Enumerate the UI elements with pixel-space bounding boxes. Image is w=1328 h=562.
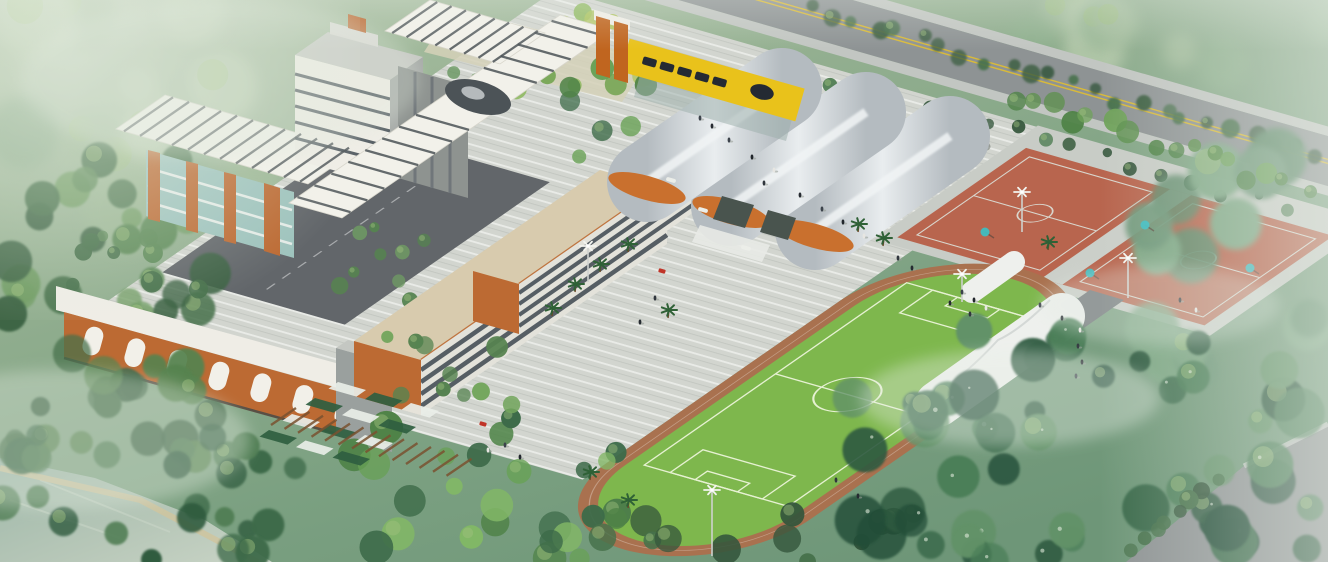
person (961, 289, 964, 294)
riverbank-trees-tree (49, 507, 78, 536)
trees-south-tree (589, 523, 617, 551)
road-trees-north-tree (1090, 83, 1101, 94)
mist-over-trees-2 (1040, 265, 1280, 345)
garden-sw-tree (394, 485, 426, 517)
garden-mid-tree (415, 336, 433, 354)
person (699, 115, 702, 120)
lamp-head (960, 272, 963, 275)
road-trees-south-tree-highlight (1014, 121, 1020, 127)
garden-sw-tree (481, 489, 514, 522)
trees-south-tree-highlight (658, 528, 670, 540)
person (711, 123, 714, 128)
woods-se-tree (895, 504, 928, 537)
riverbank-trees-tree (104, 521, 128, 545)
person (857, 493, 860, 498)
person (969, 311, 972, 316)
garden-sw-tree-highlight (510, 461, 521, 472)
woods-se-leaf-sparkle (965, 533, 969, 537)
woods-se-leaf-sparkle (924, 537, 928, 541)
garden-sw-tree-highlight (462, 528, 473, 539)
woods-se-leaf-sparkle (1040, 549, 1044, 553)
road-trees-north-tree (1022, 65, 1041, 84)
person (949, 300, 952, 305)
woods-west-south-tree (53, 334, 91, 372)
person (519, 454, 522, 459)
garden-sw-tree-highlight (386, 521, 401, 536)
person (821, 206, 824, 211)
person (773, 167, 776, 172)
person (842, 219, 845, 224)
person (654, 295, 657, 300)
trees-south-tree (773, 525, 801, 553)
shrubs-court-west-tree-highlight (419, 235, 425, 241)
gym-west-trees-tree (592, 120, 613, 141)
garden-mid-tree (503, 396, 520, 413)
person (504, 442, 507, 447)
woods-se-leaf-sparkle (870, 435, 873, 438)
hedge-courts-tree (1044, 92, 1065, 113)
woods-se-tree (842, 427, 887, 472)
garden-mid-tree (457, 388, 471, 402)
woods-se-tree (956, 313, 992, 349)
gym-west-trees-tree (621, 116, 641, 136)
top-fade (0, 0, 1328, 50)
garden-mid-tree (486, 336, 508, 358)
road-trees-south-tree-highlight (1041, 134, 1047, 140)
shrubs-court-west-tree (392, 274, 405, 287)
person (897, 255, 900, 260)
hedge-courts-tree-highlight (1027, 94, 1034, 101)
person (751, 154, 754, 159)
person (639, 319, 642, 324)
shrubs-court-west-tree (369, 222, 379, 232)
road-trees-north-tree (1069, 75, 1079, 85)
garden-mid-tree (472, 382, 490, 400)
lamp-head (710, 488, 713, 491)
garden-mid-tree (442, 366, 458, 382)
gym-west-trees-tree (560, 77, 581, 98)
hedge-courts-tree (1025, 93, 1041, 109)
person (863, 233, 866, 238)
road-trees-south-tree (1063, 138, 1076, 151)
woods-se-tree (988, 453, 1020, 485)
riverbank-trees-tree (177, 503, 207, 533)
hedge-courts-tree-highlight (1009, 94, 1018, 103)
garden-sw-tree (467, 443, 491, 467)
shrubs-court-west-tree-highlight (404, 294, 411, 301)
lamp-head (1020, 190, 1023, 193)
woods-se-leaf-sparkle (865, 509, 869, 513)
garden-sw-tree (460, 525, 484, 549)
woods-se-tree (835, 495, 886, 546)
garden-mid-tree-highlight (410, 335, 417, 342)
shrubs-court-west-tree (417, 234, 430, 247)
road-trees-south-tree-highlight (825, 79, 832, 86)
garden-sw-tree-highlight (608, 444, 617, 453)
trees-south-tree-highlight (646, 533, 654, 541)
riverbank-trees-tree (215, 507, 235, 527)
road-trees-south-tree (1039, 133, 1053, 147)
lamp-head (586, 244, 589, 247)
person (973, 297, 976, 302)
trees-south-tree-highlight (783, 505, 794, 516)
mist-over-trees-1 (860, 350, 1160, 446)
shrubs-court-west-tree (395, 245, 410, 260)
trees-south-tree (654, 525, 681, 552)
campus-rendering-svg (0, 0, 1328, 562)
hedge-courts-tree (1077, 107, 1092, 122)
road-trees-north-tree (978, 58, 990, 70)
garden-sw-tree (539, 530, 562, 553)
person (763, 180, 766, 185)
gym-west-trees-tree (572, 150, 586, 164)
riverbank-trees-tree (284, 457, 306, 479)
garden-sw-tree (507, 459, 532, 484)
hedge-courts-tree-highlight (1079, 109, 1086, 116)
garden-mid-tree (381, 331, 393, 343)
gym-west-trees-tree-highlight (594, 122, 603, 131)
person (487, 447, 490, 452)
person (799, 192, 802, 197)
garden-sw-tree (446, 478, 463, 495)
garden-mid-tree-highlight (438, 383, 445, 390)
garden-mid-tree (436, 382, 451, 397)
woods-se-tree (937, 455, 980, 498)
road-trees-south-tree (1012, 120, 1025, 133)
garden-sw-tree (598, 452, 616, 470)
person (911, 265, 914, 270)
woods-se-leaf-sparkle (951, 474, 955, 478)
woods-se-leaf-sparkle (1058, 527, 1062, 531)
road-trees-north-tree (1041, 66, 1054, 79)
person (835, 477, 838, 482)
trees-south-tree (780, 502, 804, 526)
basketball-hoop (981, 228, 990, 237)
woods-se-tree (917, 531, 945, 559)
riverbank-trees-tree-highlight (221, 537, 235, 551)
shrubs-court-west-tree-highlight (371, 223, 376, 228)
road-trees-north-tree (951, 50, 967, 66)
shrubs-court-west-tree (374, 248, 386, 260)
roof-garden-tree (447, 66, 460, 79)
road-trees-north-tree (1009, 59, 1021, 71)
person (728, 137, 731, 142)
woods-se-leaf-sparkle (985, 555, 988, 558)
woods-se-tree (1049, 512, 1085, 548)
person (985, 305, 988, 310)
riverbank-trees-tree-highlight (52, 510, 65, 523)
person (1077, 343, 1080, 348)
shrubs-court-west-tree-highlight (397, 246, 404, 253)
woods-se-leaf-sparkle (917, 511, 920, 514)
hedge-courts-tree (1007, 92, 1026, 111)
trees-south-tree-highlight (592, 526, 604, 538)
campus-rendering (0, 0, 1328, 562)
